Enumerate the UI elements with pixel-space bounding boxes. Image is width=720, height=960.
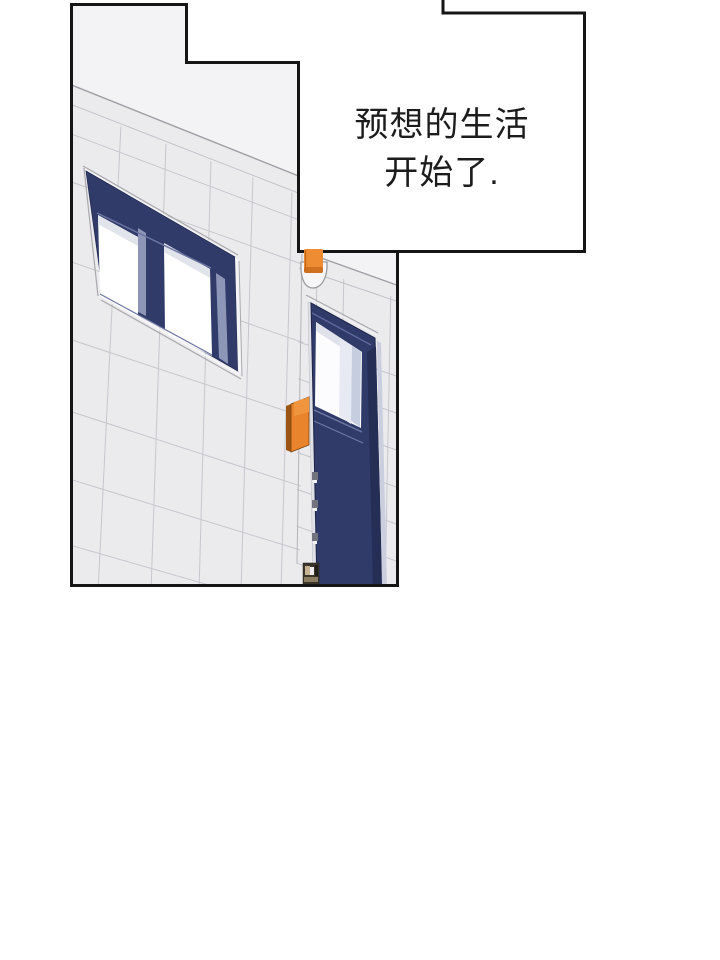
door-hinge xyxy=(312,472,318,480)
door-hinge xyxy=(312,500,318,508)
door-hinge xyxy=(312,533,318,541)
door-hinge xyxy=(313,480,317,483)
door-glass-reflection xyxy=(351,346,361,427)
floor-box-panel xyxy=(305,566,310,575)
sign-side-edge xyxy=(286,404,291,452)
caption-box-fill xyxy=(297,0,586,253)
floor-box-shade xyxy=(315,565,318,576)
floor-box-band xyxy=(304,577,318,582)
floor-box xyxy=(303,563,319,587)
panel-artwork xyxy=(0,0,720,960)
door-hinge xyxy=(313,541,317,544)
door-hinge xyxy=(313,508,317,511)
lamp-base xyxy=(304,267,323,273)
comic-page: 预想的生活 开始了. xyxy=(0,0,720,960)
floor-box-slot xyxy=(310,567,314,575)
window-bevel xyxy=(138,228,146,316)
navy-door xyxy=(306,295,387,587)
door-glass-reflection xyxy=(339,338,352,424)
orange-wall-sign xyxy=(286,397,309,452)
caption-box xyxy=(297,0,586,253)
